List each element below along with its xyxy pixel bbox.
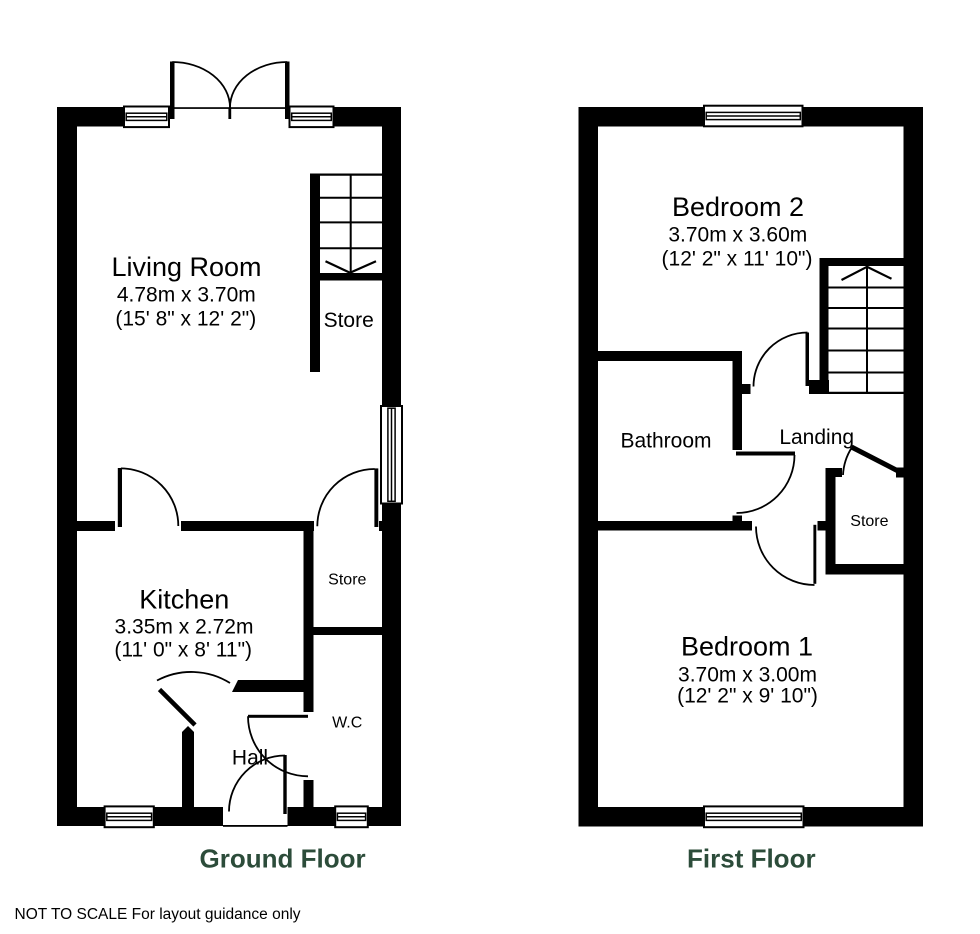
svg-text:Store: Store xyxy=(850,513,888,530)
svg-text:Store: Store xyxy=(328,572,366,589)
svg-text:W.C: W.C xyxy=(332,715,362,732)
svg-text:3.70m x 3.60m: 3.70m x 3.60m xyxy=(668,224,807,247)
svg-text:Landing: Landing xyxy=(779,426,854,449)
svg-text:NOT TO SCALE For layout guidan: NOT TO SCALE For layout guidance only xyxy=(15,906,301,923)
svg-text:(12' 2" x 11' 10"): (12' 2" x 11' 10") xyxy=(662,248,813,271)
svg-text:Kitchen: Kitchen xyxy=(139,585,229,615)
svg-text:Store: Store xyxy=(324,309,374,332)
svg-text:3.70m x 3.00m: 3.70m x 3.00m xyxy=(678,663,817,686)
svg-text:Bedroom 1: Bedroom 1 xyxy=(681,631,813,661)
svg-text:First Floor: First Floor xyxy=(687,844,816,874)
svg-text:Bathroom: Bathroom xyxy=(620,429,711,452)
svg-text:Bedroom 2: Bedroom 2 xyxy=(672,192,804,222)
svg-text:(12' 2" x 9' 10"): (12' 2" x 9' 10") xyxy=(677,685,818,708)
svg-text:Ground Floor: Ground Floor xyxy=(200,844,366,874)
svg-text:4.78m x 3.70m: 4.78m x 3.70m xyxy=(117,283,256,306)
svg-text:Hall: Hall xyxy=(232,746,268,769)
svg-text:(15' 8" x 12' 2"): (15' 8" x 12' 2") xyxy=(115,308,256,331)
svg-text:Living Room: Living Room xyxy=(111,252,261,282)
svg-text:3.35m x 2.72m: 3.35m x 2.72m xyxy=(115,616,254,639)
svg-text:(11' 0" x 8' 11"): (11' 0" x 8' 11") xyxy=(114,639,252,662)
